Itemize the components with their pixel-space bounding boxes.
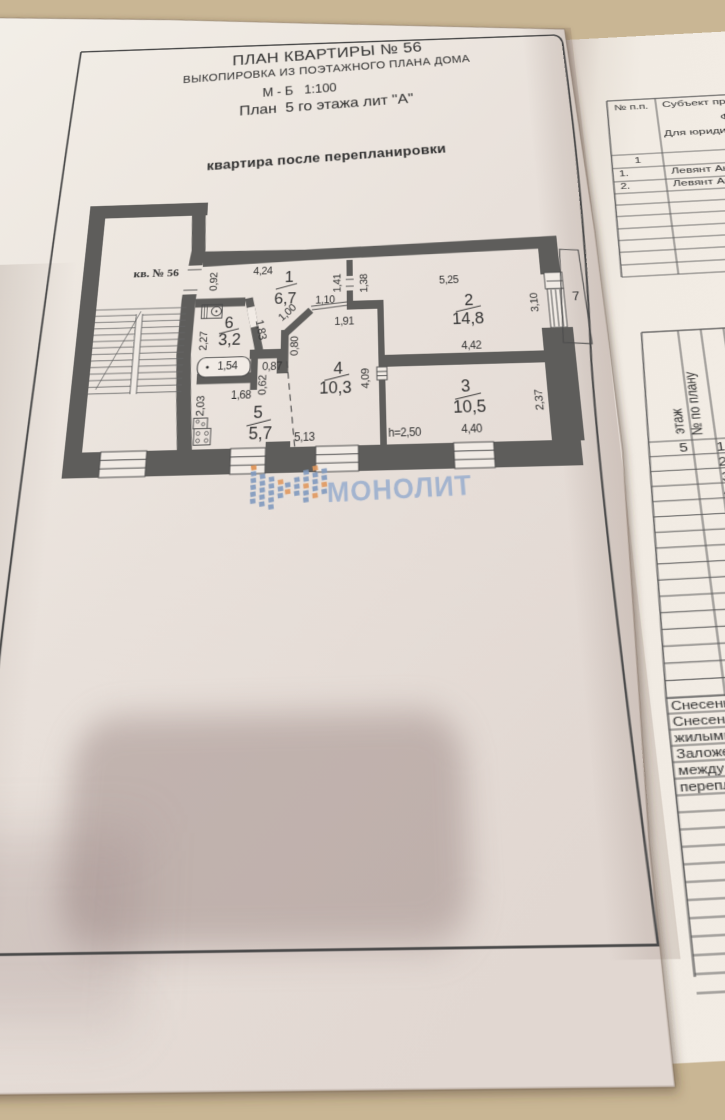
- svg-text:5: 5: [253, 402, 263, 422]
- svg-text:1,68: 1,68: [231, 388, 252, 402]
- svg-text:0,62: 0,62: [255, 374, 268, 395]
- svg-text:1,10: 1,10: [315, 294, 335, 307]
- svg-text:0,80: 0,80: [288, 336, 301, 357]
- svg-text:3: 3: [721, 471, 725, 485]
- svg-text:7: 7: [572, 289, 581, 304]
- svg-text:2: 2: [464, 290, 474, 308]
- svg-text:5,13: 5,13: [294, 430, 315, 444]
- svg-text:4,42: 4,42: [461, 339, 482, 352]
- svg-text:№ п.п.: № п.п.: [614, 102, 649, 112]
- svg-text:Левянт Антонина: Левянт Антонина: [671, 162, 725, 177]
- svg-text:0,92: 0,92: [207, 272, 220, 291]
- svg-text:Для юридических: Для юридических: [663, 124, 725, 139]
- svg-text:5,7: 5,7: [248, 423, 272, 444]
- svg-text:h=2,50: h=2,50: [388, 425, 422, 439]
- svg-text:Субъект права: Субъект права: [662, 96, 725, 109]
- svg-text:1,91: 1,91: [334, 315, 354, 328]
- svg-text:кв. № 56: кв. № 56: [133, 267, 180, 281]
- svg-text:1,41: 1,41: [331, 273, 343, 292]
- svg-text:1,54: 1,54: [217, 359, 238, 372]
- svg-text:0,87: 0,87: [262, 359, 283, 372]
- svg-text:2,27: 2,27: [196, 331, 210, 351]
- svg-text:4,40: 4,40: [461, 422, 483, 436]
- svg-text:4,24: 4,24: [253, 265, 273, 277]
- svg-text:5: 5: [678, 442, 688, 456]
- svg-text:1: 1: [634, 156, 642, 165]
- svg-text:4: 4: [334, 358, 343, 377]
- svg-text:1,38: 1,38: [357, 273, 370, 293]
- svg-text:1: 1: [285, 268, 294, 286]
- svg-text:1: 1: [715, 441, 725, 455]
- svg-text:этаж: этаж: [669, 407, 689, 434]
- svg-text:3: 3: [460, 376, 470, 396]
- svg-text:6,7: 6,7: [274, 289, 297, 308]
- svg-text:Левянт Антонина: Левянт Антонина: [672, 174, 725, 189]
- svg-text:4,09: 4,09: [358, 368, 371, 389]
- svg-text:Ф: Ф: [720, 113, 725, 123]
- svg-text:10,3: 10,3: [319, 377, 352, 397]
- svg-text:5,25: 5,25: [439, 274, 460, 286]
- svg-text:3,10: 3,10: [527, 292, 541, 312]
- svg-text:МОНОЛИТ: МОНОЛИТ: [326, 471, 473, 510]
- svg-text:6: 6: [224, 313, 234, 332]
- svg-text:2,03: 2,03: [193, 395, 207, 416]
- svg-text:2,37: 2,37: [531, 389, 546, 411]
- svg-text:2: 2: [718, 456, 725, 470]
